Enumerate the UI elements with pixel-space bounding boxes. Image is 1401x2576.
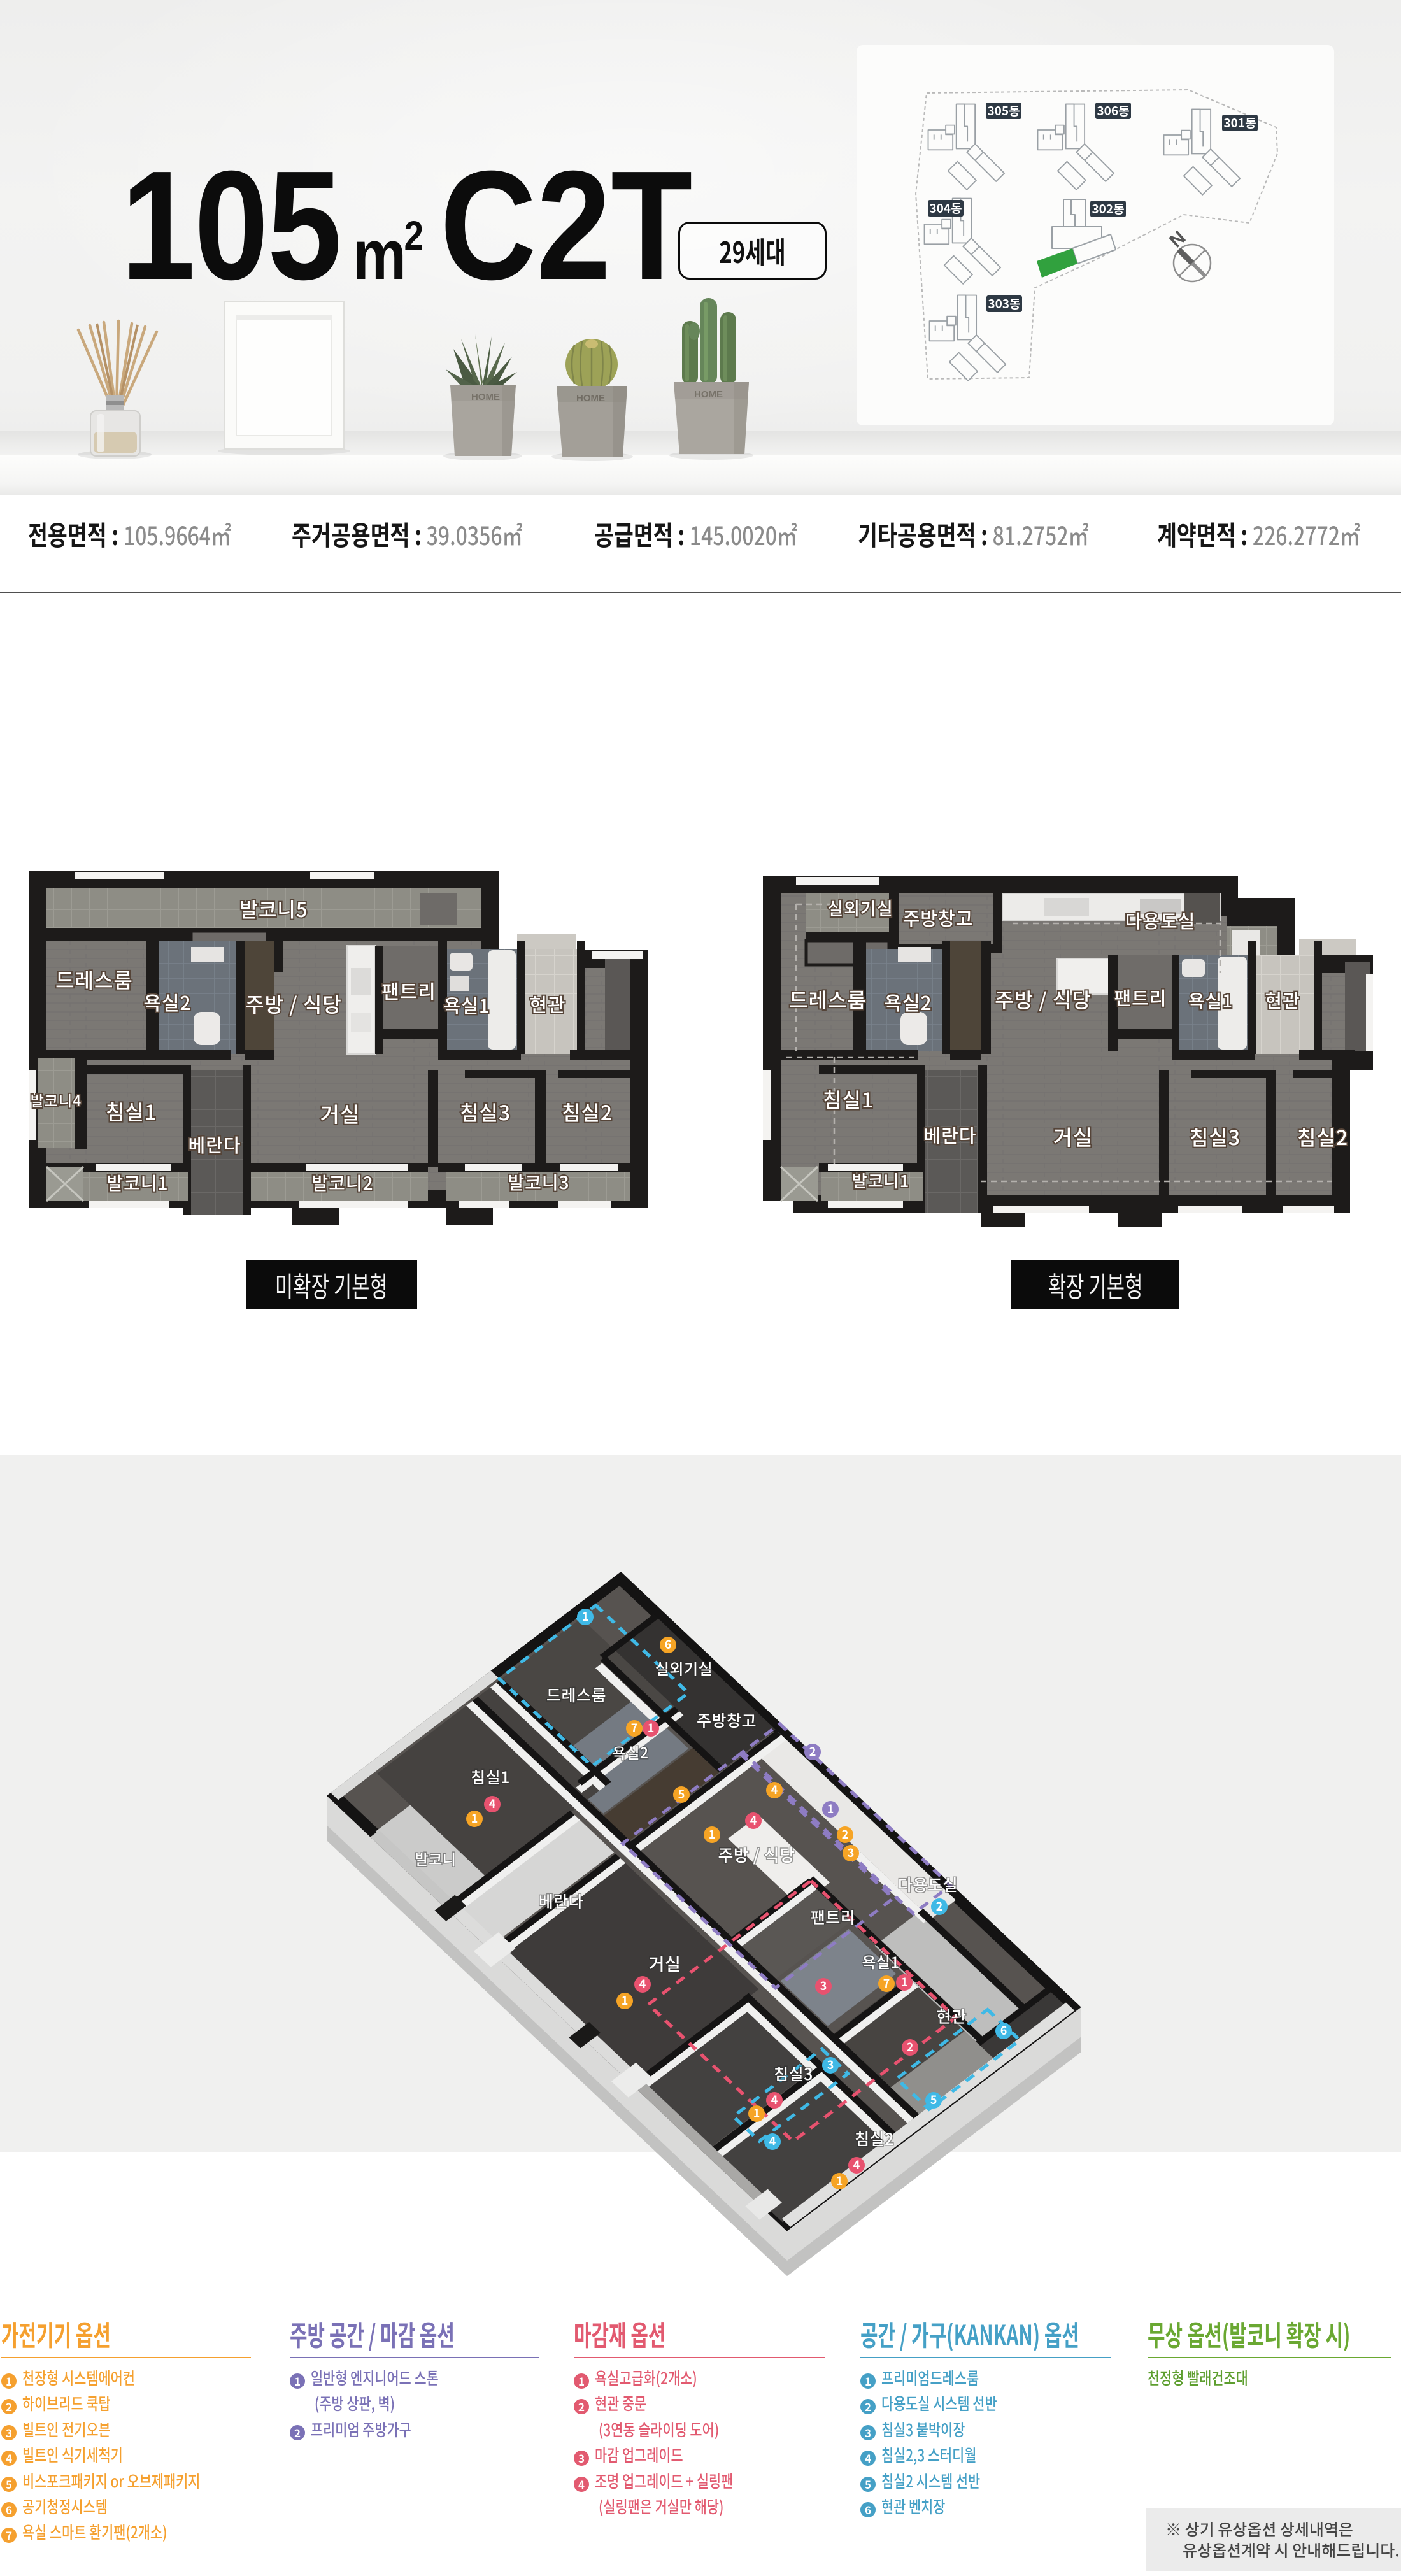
svg-text:주방 / 식당: 주방 / 식당 [718, 1843, 795, 1867]
svg-text:1: 1 [582, 1608, 589, 1625]
svg-text:팬트리: 팬트리 [1114, 984, 1167, 1011]
svg-text:303동: 303동 [988, 295, 1020, 312]
svg-text:주방창고: 주방창고 [697, 1709, 757, 1732]
svg-text:욕실2: 욕실2 [613, 1741, 649, 1763]
svg-text:1: 1 [753, 2105, 760, 2121]
svg-text:거실: 거실 [1053, 1121, 1093, 1151]
svg-text:1: 1 [648, 1719, 655, 1736]
svg-text:발코니1: 발코니1 [852, 1169, 910, 1192]
svg-text:드레스룸: 드레스룸 [546, 1683, 606, 1706]
svg-text:1: 1 [471, 1810, 478, 1826]
svg-text:거실: 거실 [649, 1951, 681, 1975]
svg-text:침실1: 침실1 [823, 1085, 874, 1114]
svg-text:5: 5 [678, 1786, 685, 1802]
svg-text:팬트리: 팬트리 [811, 1905, 856, 1928]
svg-text:발코니4: 발코니4 [31, 1089, 82, 1111]
svg-text:1: 1 [622, 1992, 629, 2009]
svg-text:욕실1: 욕실1 [862, 1950, 899, 1972]
svg-text:3: 3 [848, 1844, 855, 1861]
svg-text:304동: 304동 [929, 199, 962, 217]
svg-text:HOME: HOME [576, 393, 605, 404]
svg-text:3: 3 [827, 2056, 834, 2073]
svg-text:301동: 301동 [1223, 114, 1256, 131]
svg-text:베란다: 베란다 [188, 1131, 241, 1158]
svg-text:다용도실: 다용도실 [1125, 907, 1196, 934]
svg-text:드레스룸: 드레스룸 [55, 965, 133, 994]
svg-text:1: 1 [709, 1826, 716, 1842]
svg-text:HOME: HOME [471, 392, 500, 402]
svg-text:발코니2: 발코니2 [311, 1170, 373, 1195]
svg-text:4: 4 [771, 2091, 778, 2108]
svg-text:2: 2 [842, 1826, 849, 1842]
svg-text:실외기실: 실외기실 [827, 895, 893, 920]
svg-text:4: 4 [750, 1812, 757, 1828]
svg-text:3: 3 [820, 1977, 827, 1994]
svg-text:6: 6 [1000, 2022, 1007, 2039]
svg-text:주방창고: 주방창고 [903, 904, 974, 931]
svg-text:발코니3: 발코니3 [508, 1169, 569, 1195]
svg-text:침실3: 침실3 [774, 2062, 813, 2085]
svg-text:침실2: 침실2 [1297, 1122, 1348, 1151]
svg-text:4: 4 [771, 1781, 778, 1798]
svg-text:침실3: 침실3 [1190, 1122, 1241, 1151]
svg-text:베란다: 베란다 [923, 1121, 976, 1148]
svg-text:7: 7 [883, 1975, 890, 1991]
svg-text:현관: 현관 [936, 2005, 966, 2028]
svg-text:2: 2 [936, 1898, 943, 1914]
svg-text:발코니1: 발코니1 [106, 1170, 168, 1195]
svg-text:7: 7 [631, 1719, 638, 1736]
svg-text:팬트리: 팬트리 [381, 976, 436, 1004]
svg-text:거실: 거실 [320, 1098, 360, 1128]
svg-text:현관: 현관 [529, 990, 565, 1018]
svg-text:실외기실: 실외기실 [655, 1656, 713, 1679]
svg-text:베란다: 베란다 [539, 1889, 584, 1912]
svg-text:306동: 306동 [1097, 102, 1129, 119]
svg-text:발코니: 발코니 [415, 1847, 457, 1869]
svg-text:현관: 현관 [1265, 986, 1300, 1013]
svg-text:4: 4 [769, 2133, 776, 2149]
svg-text:6: 6 [665, 1636, 672, 1653]
svg-text:주방 / 식당: 주방 / 식당 [995, 985, 1092, 1014]
svg-text:침실3: 침실3 [460, 1097, 511, 1127]
svg-text:4: 4 [639, 1975, 646, 1992]
svg-text:주방 / 식당: 주방 / 식당 [245, 989, 342, 1018]
svg-text:욕실1: 욕실1 [1188, 988, 1233, 1013]
svg-text:욕실2: 욕실2 [884, 988, 932, 1016]
svg-text:1: 1 [827, 1800, 834, 1817]
svg-text:305동: 305동 [987, 102, 1020, 119]
svg-text:드레스룸: 드레스룸 [789, 985, 867, 1014]
svg-text:침실2: 침실2 [562, 1097, 613, 1127]
svg-text:욕실1: 욕실1 [444, 992, 490, 1018]
svg-text:5: 5 [930, 2091, 937, 2108]
svg-text:1: 1 [901, 1974, 908, 1990]
svg-text:욕실2: 욕실2 [143, 988, 191, 1016]
svg-text:다용도실: 다용도실 [898, 1873, 958, 1896]
svg-text:침실1: 침실1 [471, 1765, 510, 1788]
svg-text:302동: 302동 [1092, 200, 1124, 217]
svg-text:침실2: 침실2 [855, 2127, 894, 2150]
svg-text:4: 4 [853, 2156, 860, 2173]
svg-text:1: 1 [836, 2172, 843, 2189]
svg-text:2: 2 [809, 1743, 816, 1760]
svg-text:4: 4 [489, 1795, 496, 1812]
svg-text:2: 2 [907, 2039, 914, 2055]
svg-text:발코니5: 발코니5 [239, 894, 308, 923]
svg-text:침실1: 침실1 [106, 1097, 157, 1126]
svg-text:HOME: HOME [694, 389, 723, 400]
